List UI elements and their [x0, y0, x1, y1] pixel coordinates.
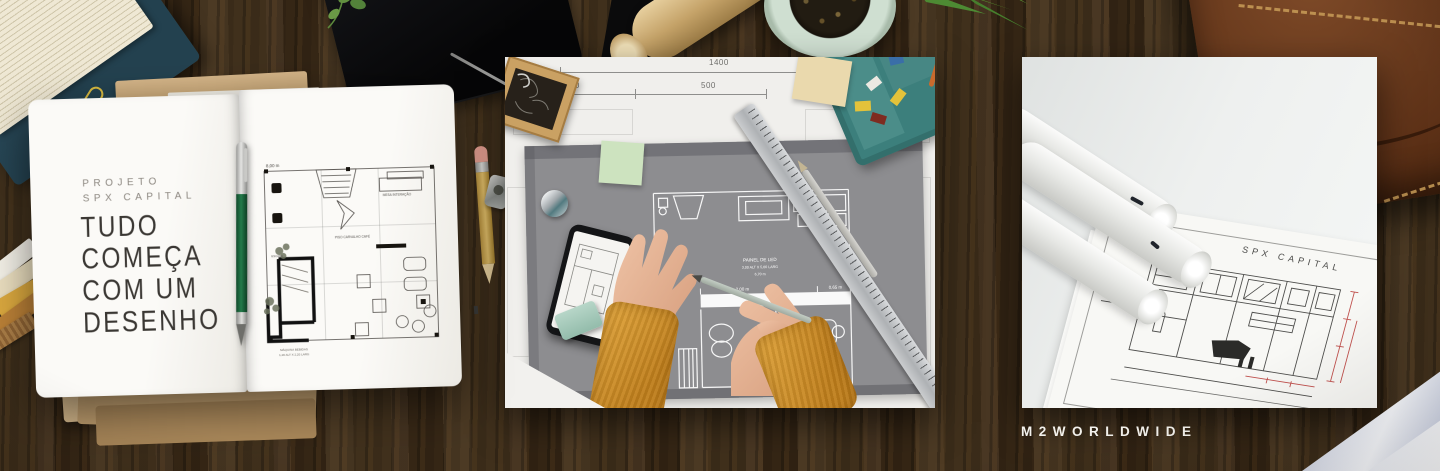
hands [505, 57, 935, 408]
pen-clip [244, 148, 247, 182]
project-eyebrow: PROJETO SPX CAPITAL [82, 173, 196, 206]
sketchbook-right-page: 8,00 m MESA INTERAÇÃO PISO CARVALHO CAFÉ… [239, 84, 462, 392]
pencil-lead [474, 306, 479, 314]
plan-caption-1: MÁQUINA BEBIDAS [280, 347, 308, 352]
pen-cap [236, 142, 247, 194]
sketchbook-left-page: PROJETO SPX CAPITAL TUDO COMEÇA COM UM D… [28, 94, 247, 398]
heading-line2: COMEÇA [81, 240, 219, 276]
plan-dim-label: 8,00 m [266, 163, 280, 168]
page-title: TUDO COMEÇA COM UM DESENHO [80, 208, 221, 339]
green-pen [236, 142, 247, 354]
banner-canvas: PROJETO SPX CAPITAL TUDO COMEÇA COM UM D… [0, 0, 1440, 471]
envelope-stack-3 [95, 398, 316, 446]
pen-tip [236, 324, 246, 346]
pen-barrel [236, 194, 247, 312]
pencil-eraser [474, 146, 488, 163]
plan-desk-label: MESA INTERAÇÃO [383, 191, 412, 197]
sketchbook: PROJETO SPX CAPITAL TUDO COMEÇA COM UM D… [26, 79, 465, 404]
plan-floor-label: PISO CARVALHO CAFÉ [335, 234, 370, 240]
brand-wordmark: M2WORLDWIDE [1021, 424, 1198, 439]
plan-stairs-label: ESCADA [271, 254, 283, 258]
drawing-sheet-photo: SPX CAPITAL [1022, 57, 1377, 408]
drawing-sheet: SPX CAPITAL [1045, 202, 1377, 408]
drafting-photo: 1400 300 500 [505, 57, 935, 408]
yellow-pencil [474, 146, 497, 293]
eyebrow-line2: SPX CAPITAL [83, 188, 197, 206]
heading-line4: DESENHO [83, 303, 221, 339]
fern-leaf-icon [916, 0, 1028, 46]
pen-ferrule [236, 312, 247, 324]
plant-sprig-icon [314, 0, 378, 36]
floor-plan-sketch: 8,00 m MESA INTERAÇÃO PISO CARVALHO CAFÉ… [239, 84, 462, 392]
plan-caption-2: 1,20 ALT X 2,20 LARG [279, 352, 310, 357]
pencil-tip [482, 264, 495, 285]
